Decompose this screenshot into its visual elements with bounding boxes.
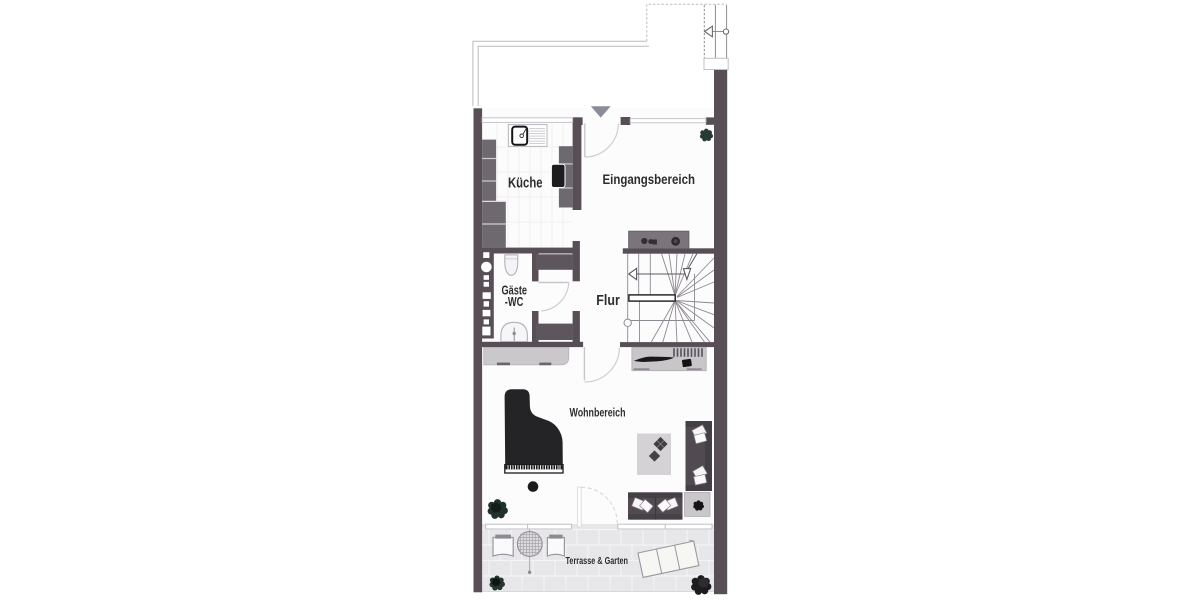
svg-text:-WC: -WC <box>505 294 524 309</box>
svg-text:Wohnbereich: Wohnbereich <box>570 406 626 420</box>
svg-text:Flur: Flur <box>596 292 620 309</box>
svg-text:Terrasse & Garten: Terrasse & Garten <box>566 556 629 567</box>
svg-text:Eingangsbereich: Eingangsbereich <box>603 171 696 187</box>
svg-text:Küche: Küche <box>508 175 543 192</box>
